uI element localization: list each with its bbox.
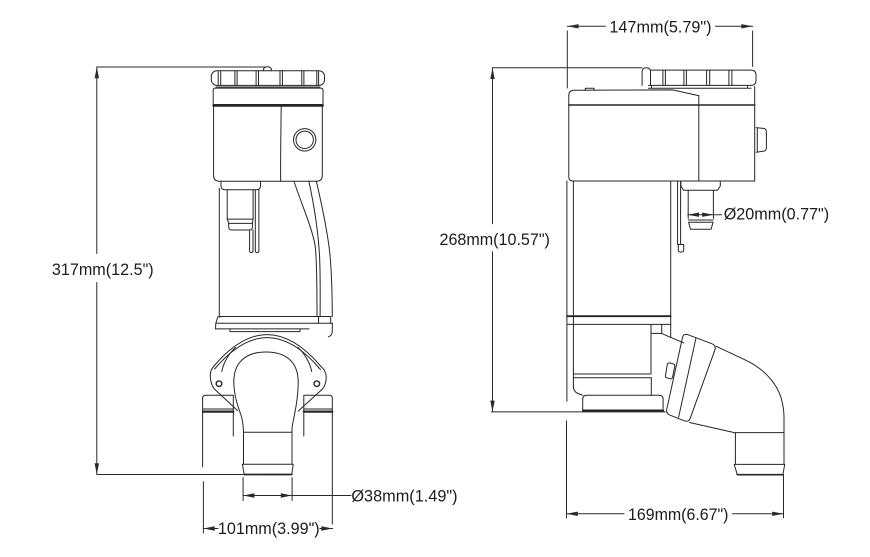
svg-text:101mm(3.99"): 101mm(3.99"): [218, 519, 320, 538]
svg-text:Ø38mm(1.49"): Ø38mm(1.49"): [351, 487, 457, 506]
svg-text:Ø20mm(0.77"): Ø20mm(0.77"): [724, 205, 830, 224]
svg-text:169mm(6.67"): 169mm(6.67"): [628, 505, 729, 524]
svg-text:147mm(5.79"): 147mm(5.79"): [609, 17, 711, 36]
svg-text:268mm(10.57"): 268mm(10.57"): [440, 230, 550, 249]
svg-text:317mm(12.5"): 317mm(12.5"): [52, 260, 154, 279]
